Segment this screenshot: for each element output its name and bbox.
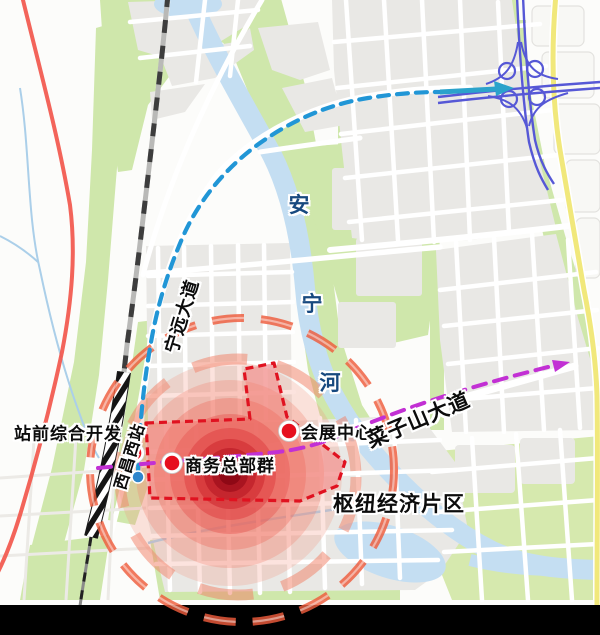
label-river-ning: 宁 (302, 288, 323, 318)
business-hq-marker[interactable] (162, 453, 183, 474)
label-business-hq: 商务总部群 (185, 452, 275, 477)
label-station-development: 站前综合开发 (14, 420, 122, 445)
planning-map: 站前综合开发 西昌西站 宁远大道 商务总部群 会展中心 枢纽经济片区 菜子山大道… (0, 0, 600, 635)
label-river-an: 安 (289, 189, 310, 219)
label-hub-economic-area: 枢纽经济片区 (333, 488, 465, 518)
convention-center-marker[interactable] (279, 421, 300, 442)
label-convention-center: 会展中心 (301, 419, 373, 444)
label-river-he: 河 (320, 367, 341, 397)
map-canvas (0, 0, 600, 635)
